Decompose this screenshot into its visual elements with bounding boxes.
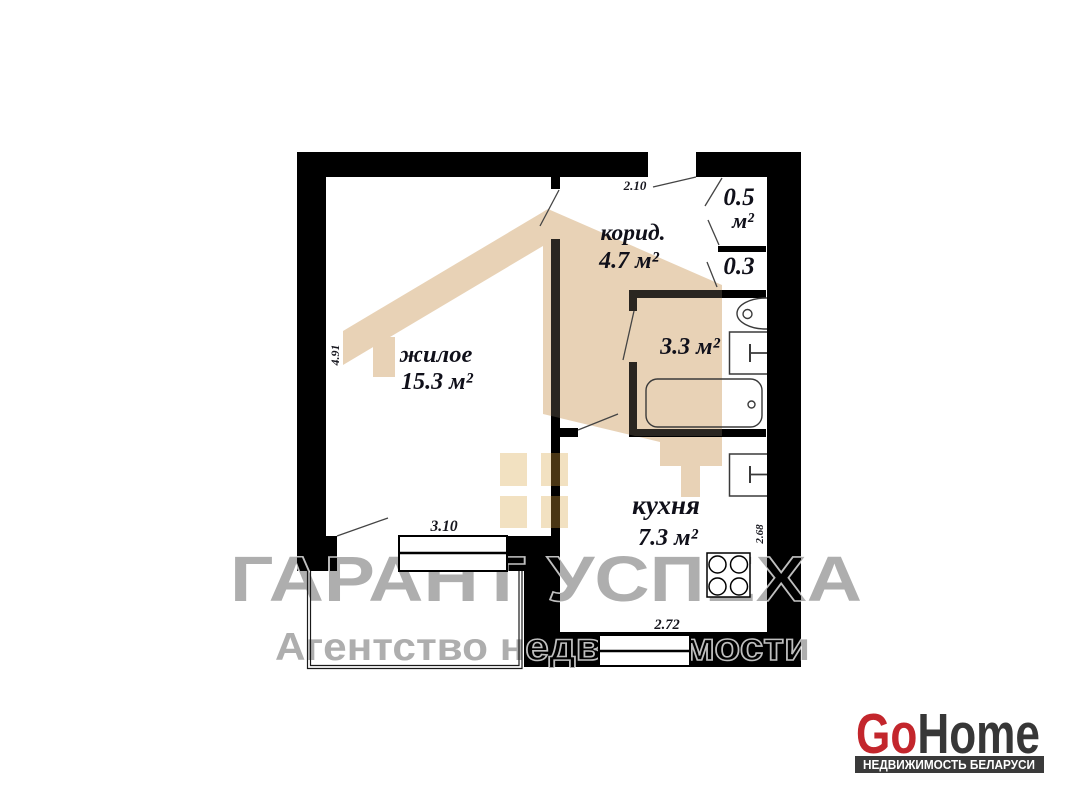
- svg-text:НЕДВИЖИМОСТЬ БЕЛАРУСИ: НЕДВИЖИМОСТЬ БЕЛАРУСИ: [863, 758, 1035, 772]
- svg-text:2.68: 2.68: [754, 524, 766, 545]
- svg-text:3.10: 3.10: [429, 518, 457, 535]
- svg-text:м²: м²: [731, 208, 754, 233]
- svg-text:корид.: корид.: [600, 220, 665, 246]
- svg-text:кухня: кухня: [632, 490, 700, 520]
- svg-text:7.3 м²: 7.3 м²: [638, 525, 698, 551]
- svg-text:3.3 м²: 3.3 м²: [659, 334, 720, 360]
- svg-text:2.10: 2.10: [623, 178, 647, 193]
- svg-text:2.72: 2.72: [653, 617, 679, 633]
- svg-text:4.91: 4.91: [328, 345, 342, 367]
- svg-text:0.5: 0.5: [723, 184, 754, 211]
- svg-text:жилое: жилое: [399, 341, 473, 368]
- svg-text:15.3 м²: 15.3 м²: [401, 369, 473, 395]
- svg-text:0.3: 0.3: [723, 253, 754, 280]
- svg-text:4.7 м²: 4.7 м²: [598, 248, 659, 274]
